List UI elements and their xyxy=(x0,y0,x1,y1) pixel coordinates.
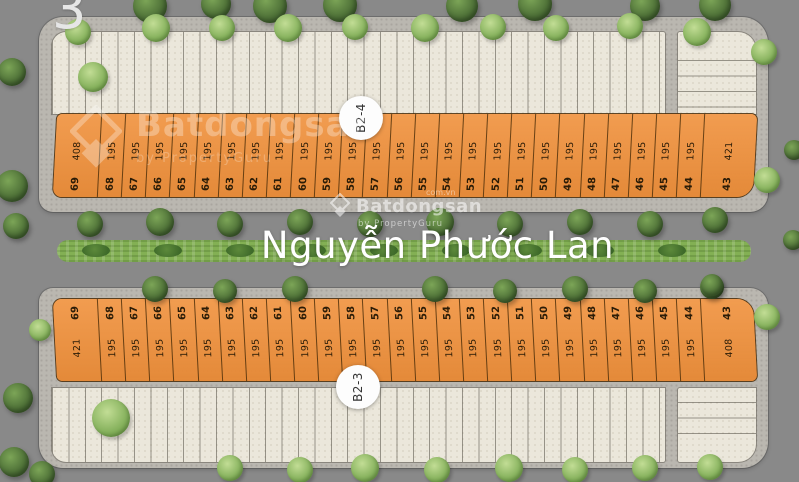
lots-row-b2-3: 4216919568195671956619565195641956319562… xyxy=(53,299,757,381)
block-b2-4: 4086919568195671956619565195641956319562… xyxy=(39,17,768,212)
lot-area: 195 xyxy=(227,339,239,358)
bush-icon xyxy=(495,454,523,482)
lot-43: 40843 xyxy=(700,299,757,381)
lot-number: 52 xyxy=(490,306,502,320)
lot-number: 62 xyxy=(249,177,261,191)
block-badge-b2-3: B2-3 xyxy=(336,365,380,409)
lot-area: 195 xyxy=(637,339,649,358)
lot-number: 68 xyxy=(104,306,116,320)
lot-number: 56 xyxy=(394,177,406,191)
bush-icon xyxy=(617,13,643,39)
lot-number: 64 xyxy=(201,306,213,320)
tree-icon xyxy=(493,279,517,303)
lot-number: 55 xyxy=(418,177,430,191)
lot-number: 53 xyxy=(466,177,478,191)
bush-icon xyxy=(78,62,108,92)
lot-area: 195 xyxy=(588,141,600,160)
lot-area: 195 xyxy=(202,141,214,160)
lot-69: 40869 xyxy=(53,114,101,197)
bush-icon xyxy=(92,399,130,437)
lot-number: 65 xyxy=(177,177,189,191)
lot-area: 195 xyxy=(468,141,480,160)
lot-number: 66 xyxy=(152,177,164,191)
bush-icon xyxy=(209,15,235,41)
lot-area: 195 xyxy=(468,339,480,358)
lot-number: 57 xyxy=(370,177,382,191)
lot-number: 59 xyxy=(321,177,333,191)
lot-number: 47 xyxy=(611,177,623,191)
lot-number: 50 xyxy=(538,177,550,191)
block-badge-label: B2-4 xyxy=(354,103,368,133)
bush-icon xyxy=(351,454,379,482)
tree-icon xyxy=(282,276,308,302)
bush-icon xyxy=(217,455,243,481)
block-badge-b2-4: B2-4 xyxy=(339,96,383,140)
bush-icon xyxy=(632,455,658,481)
tree-icon xyxy=(0,58,26,86)
corner-road-label: 3 xyxy=(52,0,86,37)
tree-icon xyxy=(3,213,29,239)
lot-area: 195 xyxy=(661,339,673,358)
block-badge-label: B2-3 xyxy=(351,372,365,402)
bush-icon xyxy=(274,14,302,42)
bush-icon xyxy=(480,14,506,40)
lot-number: 53 xyxy=(466,306,478,320)
lot-number: 44 xyxy=(683,306,695,320)
tree-icon xyxy=(422,276,448,302)
lot-number: 47 xyxy=(611,306,623,320)
lot-number: 57 xyxy=(370,306,382,320)
lot-43: 42143 xyxy=(700,114,757,197)
lot-area: 195 xyxy=(420,339,432,358)
lot-number: 59 xyxy=(321,306,333,320)
lot-number: 48 xyxy=(587,306,599,320)
lot-area: 195 xyxy=(492,339,504,358)
tree-icon xyxy=(633,279,657,303)
lot-number: 43 xyxy=(722,177,734,191)
lot-number: 46 xyxy=(635,177,647,191)
lot-area: 195 xyxy=(323,141,335,160)
street-name-label: Nguyễn Phước Lan xyxy=(210,224,665,268)
lot-number: 54 xyxy=(442,306,454,320)
lot-area: 195 xyxy=(685,339,697,358)
lot-area: 408 xyxy=(724,339,736,358)
lot-area: 195 xyxy=(637,141,649,160)
bush-icon xyxy=(683,18,711,46)
lot-number: 69 xyxy=(70,306,82,320)
tree-icon xyxy=(77,211,103,237)
lot-area: 195 xyxy=(444,141,456,160)
lot-area: 195 xyxy=(130,141,142,160)
lot-area: 195 xyxy=(154,339,166,358)
bush-icon xyxy=(287,457,313,482)
lot-number: 50 xyxy=(539,306,551,320)
lot-number: 63 xyxy=(225,306,237,320)
lot-number: 49 xyxy=(563,177,575,191)
lot-area: 195 xyxy=(154,141,166,160)
bush-icon xyxy=(697,454,723,480)
lot-number: 61 xyxy=(273,177,285,191)
bush-icon xyxy=(342,14,368,40)
lot-area: 195 xyxy=(347,141,359,160)
lot-area: 195 xyxy=(347,339,359,358)
lot-area: 195 xyxy=(685,141,697,160)
lot-area: 195 xyxy=(444,339,456,358)
lot-area: 195 xyxy=(371,141,383,160)
lot-number: 48 xyxy=(587,177,599,191)
lot-number: 55 xyxy=(418,306,430,320)
tree-icon xyxy=(702,207,728,233)
lot-area: 195 xyxy=(323,339,335,358)
lot-area: 195 xyxy=(612,141,624,160)
lot-number: 56 xyxy=(394,306,406,320)
lot-area: 421 xyxy=(71,339,83,358)
lot-area: 195 xyxy=(395,141,407,160)
lot-area: 195 xyxy=(661,141,673,160)
lot-area: 421 xyxy=(723,141,735,160)
bush-icon xyxy=(29,319,51,341)
lot-number: 62 xyxy=(249,306,261,320)
lot-69: 42169 xyxy=(53,299,101,381)
bush-icon xyxy=(751,39,777,65)
lot-area: 195 xyxy=(106,141,118,160)
tree-icon xyxy=(784,140,799,160)
lot-area: 195 xyxy=(516,339,528,358)
tree-icon xyxy=(213,279,237,303)
lot-number: 54 xyxy=(442,177,454,191)
lot-area: 195 xyxy=(202,339,214,358)
lot-number: 65 xyxy=(177,306,189,320)
lot-area: 408 xyxy=(71,141,83,160)
lot-number: 67 xyxy=(128,177,140,191)
bush-icon xyxy=(424,457,450,482)
lot-number: 51 xyxy=(514,177,526,191)
lot-area: 195 xyxy=(251,339,263,358)
lot-area: 195 xyxy=(564,339,576,358)
lot-area: 195 xyxy=(226,141,238,160)
bush-icon xyxy=(411,14,439,42)
lot-number: 63 xyxy=(225,177,237,191)
lot-number: 45 xyxy=(659,177,671,191)
lot-area: 195 xyxy=(178,141,190,160)
lots-row-b2-4: 4086919568195671956619565195641956319562… xyxy=(53,114,757,197)
lot-area: 195 xyxy=(371,339,383,358)
lot-number: 46 xyxy=(635,306,647,320)
lot-area: 195 xyxy=(588,339,600,358)
tree-icon xyxy=(146,208,174,236)
lot-number: 64 xyxy=(201,177,213,191)
lot-area: 195 xyxy=(564,141,576,160)
lot-area: 195 xyxy=(395,339,407,358)
lot-number: 51 xyxy=(514,306,526,320)
tree-icon xyxy=(3,383,33,413)
lot-number: 49 xyxy=(563,306,575,320)
lot-area: 195 xyxy=(299,141,311,160)
tree-icon xyxy=(562,276,588,302)
lot-number: 60 xyxy=(297,306,309,320)
lot-area: 195 xyxy=(516,141,528,160)
block-b2-3: 4216919568195671956619565195641956319562… xyxy=(39,288,768,468)
tree-icon xyxy=(0,447,29,477)
lot-area: 195 xyxy=(251,141,263,160)
lot-number: 61 xyxy=(273,306,285,320)
lot-area: 195 xyxy=(178,339,190,358)
parcel-divider-lines xyxy=(678,402,756,447)
lot-area: 195 xyxy=(299,339,311,358)
bush-icon xyxy=(754,304,780,330)
lot-number: 43 xyxy=(722,306,734,320)
tree-icon xyxy=(142,276,168,302)
tree-icon xyxy=(29,461,55,482)
lot-area: 195 xyxy=(275,141,287,160)
lot-number: 69 xyxy=(70,177,82,191)
lot-number: 44 xyxy=(683,177,695,191)
lot-area: 195 xyxy=(492,141,504,160)
lot-number: 52 xyxy=(490,177,502,191)
lot-area: 195 xyxy=(540,141,552,160)
lot-number: 58 xyxy=(345,177,357,191)
lot-area: 195 xyxy=(540,339,552,358)
site-plan-map: 4086919568195671956619565195641956319562… xyxy=(0,0,799,482)
bush-icon xyxy=(543,15,569,41)
tree-icon xyxy=(783,230,799,250)
lot-number: 67 xyxy=(128,306,140,320)
lot-number: 58 xyxy=(346,306,358,320)
lot-area: 195 xyxy=(130,339,142,358)
lot-area: 195 xyxy=(106,339,118,358)
lot-number: 60 xyxy=(297,177,309,191)
tree-icon xyxy=(701,274,723,296)
lot-area: 195 xyxy=(275,339,287,358)
lot-number: 66 xyxy=(153,306,165,320)
lot-number: 45 xyxy=(659,306,671,320)
bush-icon xyxy=(142,14,170,42)
corner-parcel-group-bottom xyxy=(678,388,756,462)
bush-icon xyxy=(754,167,780,193)
lot-area: 195 xyxy=(419,141,431,160)
lot-number: 68 xyxy=(104,177,116,191)
tree-icon xyxy=(0,170,28,202)
bush-icon xyxy=(562,457,588,482)
parcel-divider-lines xyxy=(678,60,756,114)
lot-area: 195 xyxy=(613,339,625,358)
